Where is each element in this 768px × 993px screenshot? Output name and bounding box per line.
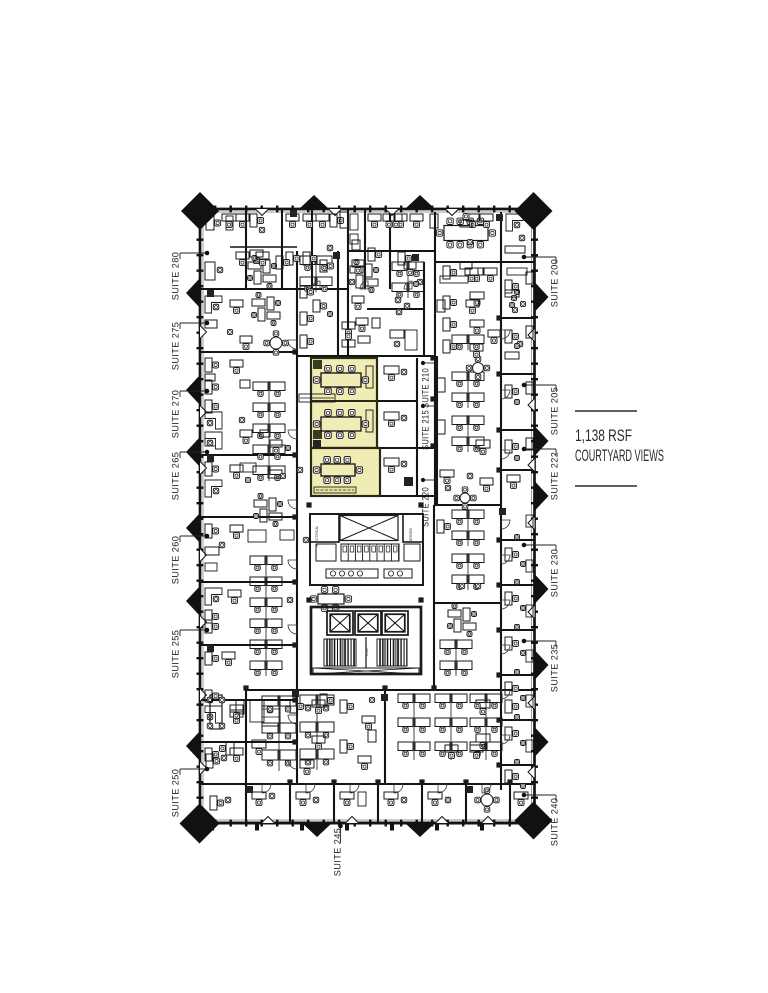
- svg-text:STAIR: STAIR: [365, 647, 369, 657]
- svg-text:SUITE 205: SUITE 205: [550, 387, 560, 436]
- svg-text:SERVER: SERVER: [409, 528, 413, 542]
- svg-text:SUITE 280: SUITE 280: [171, 252, 181, 301]
- svg-text:SUITE 275: SUITE 275: [171, 322, 181, 371]
- svg-text:SUITE 245: SUITE 245: [333, 828, 343, 877]
- svg-text:SUITE 255: SUITE 255: [171, 630, 181, 679]
- svg-text:SUITE 270: SUITE 270: [171, 390, 181, 439]
- svg-text:SUITE 240: SUITE 240: [550, 798, 560, 847]
- svg-text:SUITE 265: SUITE 265: [171, 452, 181, 501]
- svg-text:1,138 RSF: 1,138 RSF: [575, 427, 632, 445]
- svg-text:SUITE 222: SUITE 222: [550, 452, 560, 501]
- svg-text:ELECTRICAL: ELECTRICAL: [315, 525, 319, 546]
- svg-text:SUITE 250: SUITE 250: [171, 769, 181, 818]
- svg-text:SUITE 215: SUITE 215: [421, 410, 431, 450]
- svg-text:COURTYARD VIEWS: COURTYARD VIEWS: [575, 447, 664, 465]
- svg-text:SUITE 235: SUITE 235: [550, 644, 560, 693]
- svg-text:SUITE 260: SUITE 260: [171, 536, 181, 585]
- svg-text:SUITE 230: SUITE 230: [550, 549, 560, 598]
- svg-text:SUITE 210: SUITE 210: [421, 368, 431, 408]
- svg-text:SUITE 220: SUITE 220: [421, 487, 431, 527]
- svg-text:SUITE 200: SUITE 200: [550, 259, 560, 308]
